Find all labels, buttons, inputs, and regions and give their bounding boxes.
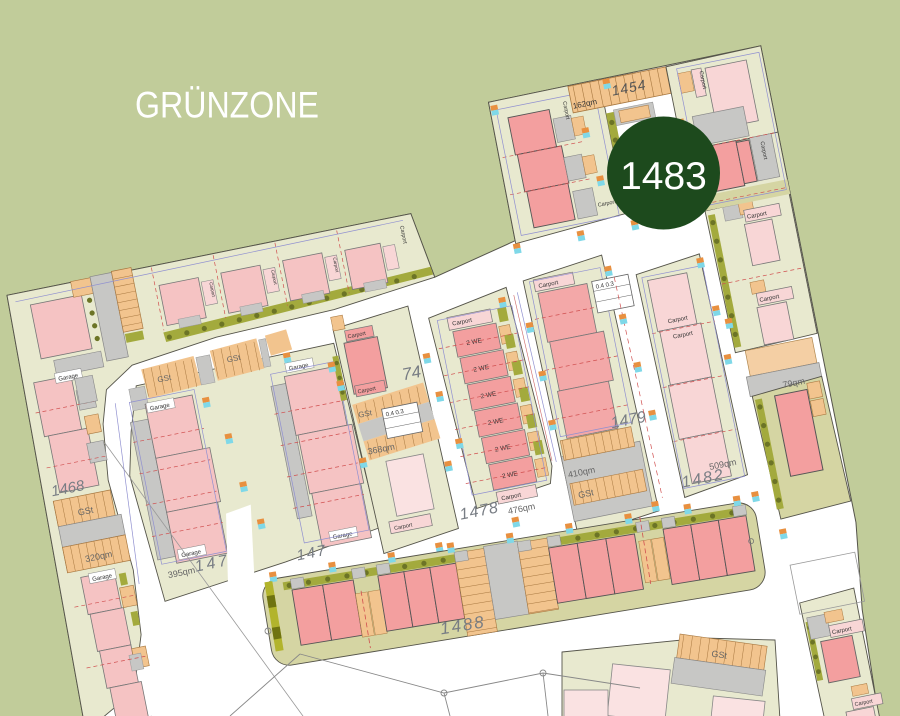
svg-text:74: 74	[400, 362, 422, 384]
svg-text:1483: 1483	[620, 155, 707, 198]
svg-text:GRÜNZONE: GRÜNZONE	[135, 85, 319, 126]
